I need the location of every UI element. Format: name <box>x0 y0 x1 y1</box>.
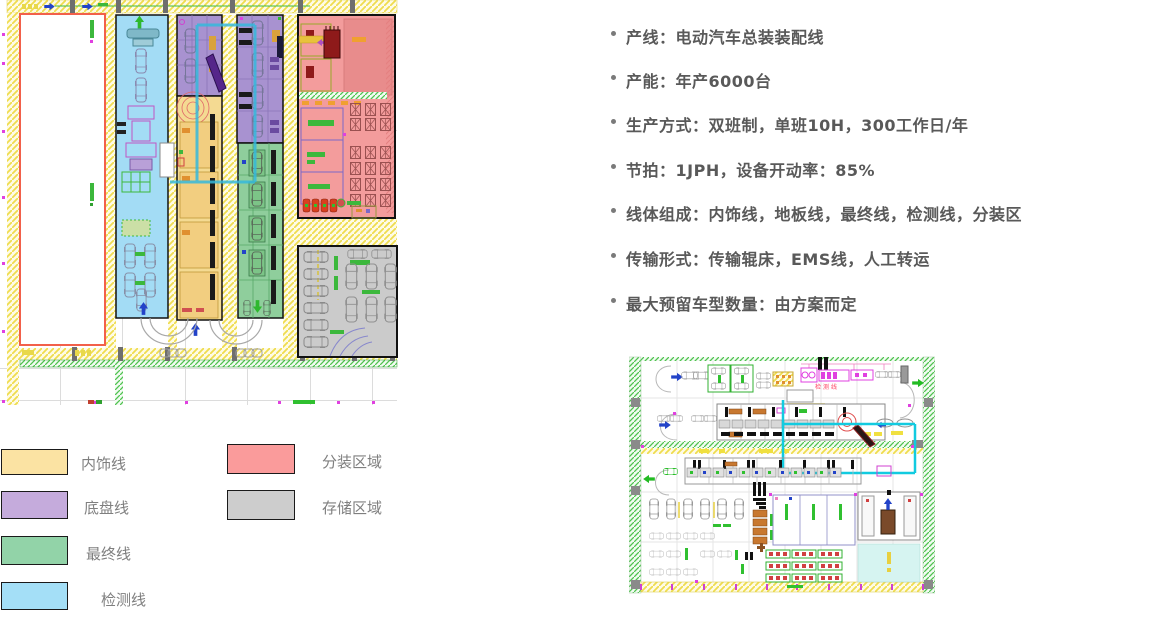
zone-chassis-upper <box>177 15 226 96</box>
legend-swatch-storage-area <box>227 490 295 520</box>
bullet-text: 产线：电动汽车总装装配线 <box>626 28 824 47</box>
legend-swatch-chassis-line <box>1 491 68 519</box>
legend-swatch-subassembly-area <box>227 444 295 474</box>
legend-label: 底盘线 <box>84 497 129 518</box>
zone-chassis-line <box>237 15 283 143</box>
bullet-dot <box>611 164 616 169</box>
main-floor-plan <box>0 0 400 407</box>
bullet-capacity: 产能：年产6000台 <box>590 68 772 92</box>
bullet-line-name: 产线：电动汽车总装装配线 <box>590 24 824 48</box>
legend-label: 最终线 <box>86 543 131 564</box>
bullet-text: 节拍：1JPH，设备开动率：85% <box>626 161 875 180</box>
empty-room <box>20 14 105 345</box>
bullet-production-mode: 生产方式：双班制，单班10H，300工作日/年 <box>590 112 968 136</box>
bullet-dot <box>611 119 616 124</box>
bullet-text: 最大预留车型数量：由方案而定 <box>626 295 857 314</box>
bullet-text: 传输形式：传输辊床，EMS线，人工转运 <box>626 250 930 269</box>
bullet-dot <box>611 75 616 80</box>
legend-label: 检测线 <box>101 589 146 610</box>
legend-swatch-interior-line <box>1 449 68 475</box>
sp-lift-station <box>858 490 920 540</box>
zone-interior-line <box>177 92 222 336</box>
bullet-line-composition: 线体组成：内饰线，地板线，最终线，检测线，分装区 <box>590 201 1022 225</box>
bullet-max-models: 最大预留车型数量：由方案而定 <box>590 291 857 315</box>
bullet-dot <box>611 31 616 36</box>
zone-subassembly <box>298 15 395 218</box>
sp-cyan-area <box>858 544 920 582</box>
bullet-takt: 节拍：1JPH，设备开动率：85% <box>590 157 875 181</box>
bullet-text: 产能：年产6000台 <box>626 72 772 91</box>
zone-storage <box>298 246 397 357</box>
bullet-dot <box>611 208 616 213</box>
legend-label: 存储区域 <box>322 497 382 518</box>
slide: 检测线 <box>0 0 1153 625</box>
legend-swatch-final-line <box>1 536 68 565</box>
legend-label: 分装区域 <box>322 451 382 472</box>
bullet-dot <box>611 253 616 258</box>
zone-final-line <box>238 143 283 318</box>
legend-swatch-test-line <box>1 582 68 610</box>
sp-test-line-label: 检测线 <box>815 383 839 391</box>
bullet-text: 线体组成：内饰线，地板线，最终线，检测线，分装区 <box>626 205 1022 224</box>
bullet-transport-type: 传输形式：传输辊床，EMS线，人工转运 <box>590 246 930 270</box>
buffer-box <box>160 143 174 177</box>
bullet-dot <box>611 298 616 303</box>
legend-label: 内饰线 <box>81 453 126 474</box>
sp-blue-cells <box>773 495 855 545</box>
bullet-text: 生产方式：双班制，单班10H，300工作日/年 <box>626 116 968 135</box>
small-floor-plan: 检测线 <box>629 352 935 598</box>
